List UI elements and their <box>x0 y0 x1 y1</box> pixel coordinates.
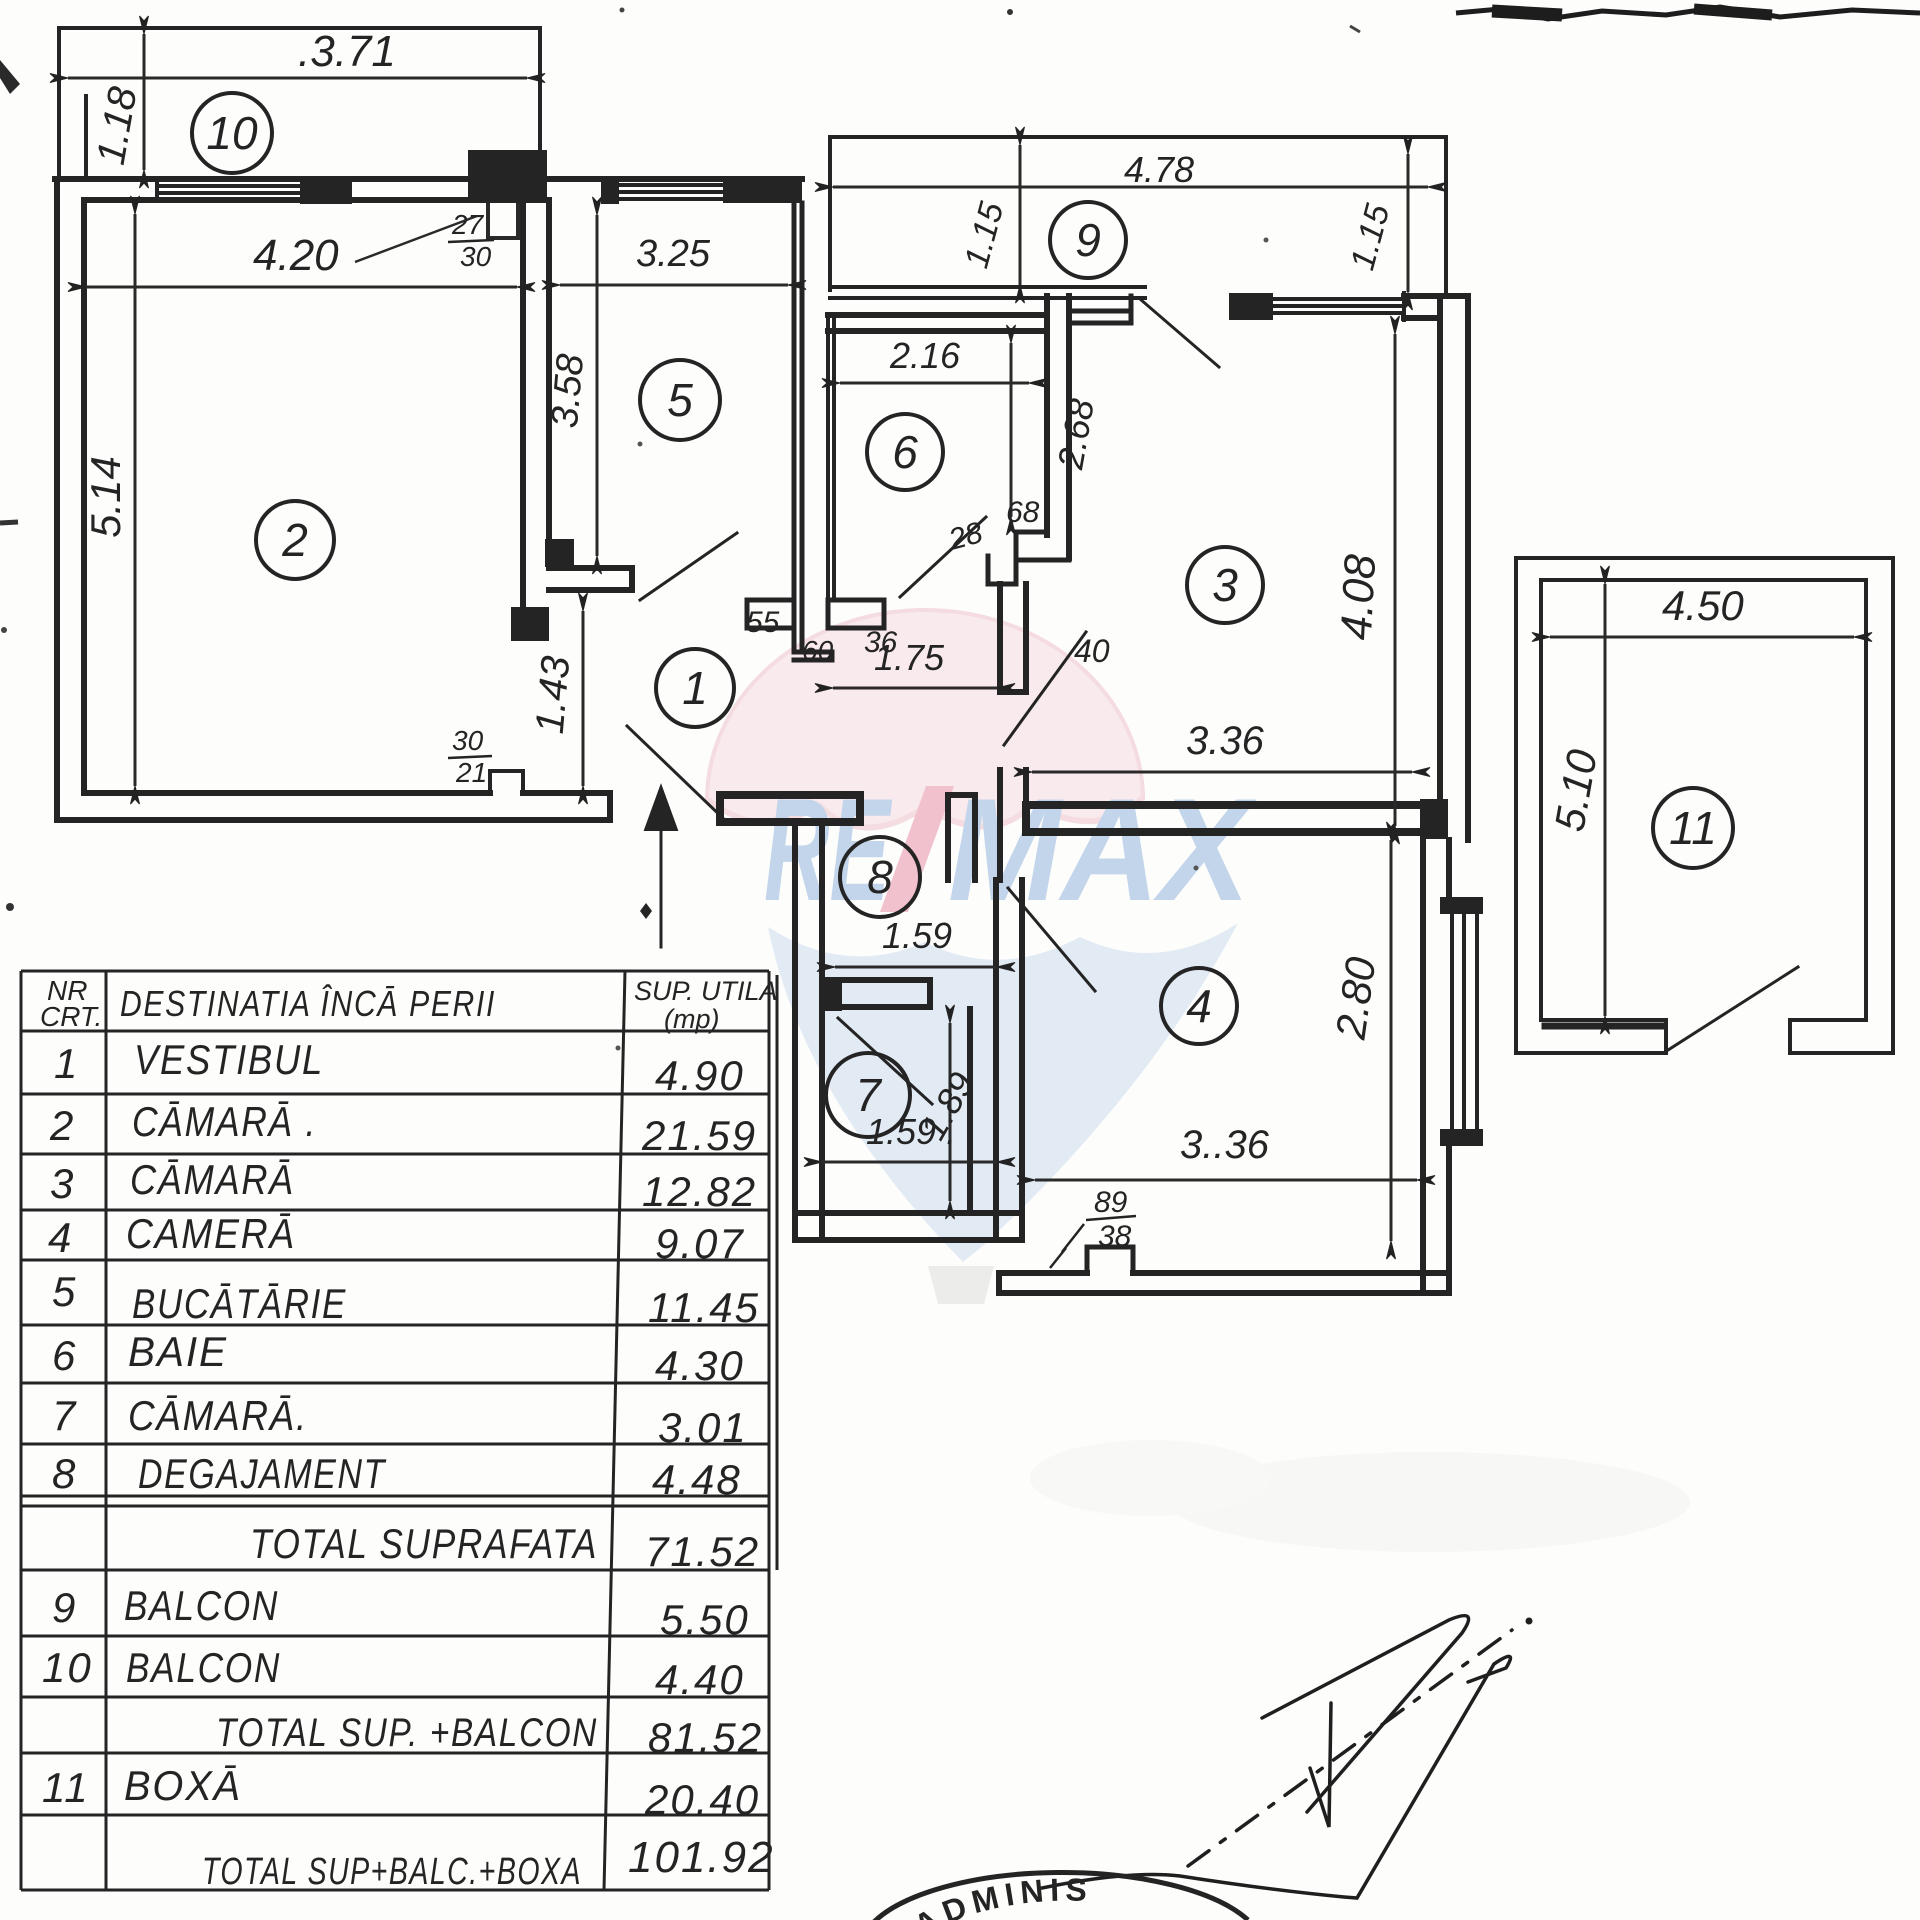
svg-text:10: 10 <box>42 1644 93 1691</box>
svg-text:8: 8 <box>867 851 893 903</box>
svg-text:101.92: 101.92 <box>628 1833 775 1882</box>
svg-text:4.78: 4.78 <box>1124 149 1194 190</box>
svg-text:4: 4 <box>1186 980 1212 1032</box>
svg-text:.3.71: .3.71 <box>298 27 396 76</box>
svg-text:7: 7 <box>855 1069 882 1121</box>
svg-text:5.50: 5.50 <box>660 1596 750 1643</box>
svg-text:7: 7 <box>52 1392 77 1439</box>
svg-text:5.14: 5.14 <box>82 456 129 538</box>
svg-text:CRT.: CRT. <box>40 1001 102 1032</box>
svg-text:3..36: 3..36 <box>1180 1123 1270 1167</box>
svg-text:9.07: 9.07 <box>655 1220 745 1267</box>
svg-text:30: 30 <box>452 725 484 756</box>
svg-text:4.20: 4.20 <box>253 231 339 280</box>
svg-text:40: 40 <box>1074 633 1110 669</box>
svg-text:11: 11 <box>42 1764 90 1811</box>
svg-text:4.48: 4.48 <box>652 1456 742 1503</box>
svg-text:3: 3 <box>50 1160 75 1207</box>
svg-text:SUP. UTILA: SUP. UTILA <box>634 976 778 1006</box>
svg-text:4.40: 4.40 <box>655 1656 745 1703</box>
svg-text:30: 30 <box>460 241 492 272</box>
svg-text:5: 5 <box>52 1268 77 1315</box>
svg-text:TOTAL SUP+BALC.+BOXA: TOTAL SUP+BALC.+BOXA <box>202 1851 582 1893</box>
svg-text:1: 1 <box>54 1040 79 1087</box>
svg-text:4: 4 <box>48 1214 73 1261</box>
svg-text:1.59: 1.59 <box>882 915 952 956</box>
svg-text:3.25: 3.25 <box>636 233 711 275</box>
svg-text:3.58: 3.58 <box>544 352 592 429</box>
svg-text:BALCON: BALCON <box>126 1644 281 1691</box>
svg-text:12.82: 12.82 <box>642 1168 757 1215</box>
svg-text:36: 36 <box>864 626 898 659</box>
svg-text:89: 89 <box>1094 1186 1128 1219</box>
svg-text:27: 27 <box>451 209 485 240</box>
svg-text:8: 8 <box>52 1450 77 1497</box>
svg-text:71.52: 71.52 <box>645 1528 760 1575</box>
svg-text:21: 21 <box>455 757 487 788</box>
svg-text:DEGAJAMENT: DEGAJAMENT <box>138 1450 387 1497</box>
svg-text:DESTINATIA ÎNCĀ PERII: DESTINATIA ÎNCĀ PERII <box>120 983 496 1024</box>
svg-text:20.40: 20.40 <box>644 1776 760 1823</box>
svg-text:BOXĀ: BOXĀ <box>124 1762 242 1809</box>
svg-text:11: 11 <box>1669 802 1717 854</box>
svg-text:CAMERĀ: CAMERĀ <box>126 1210 296 1257</box>
svg-text:6: 6 <box>892 426 918 478</box>
svg-text:9: 9 <box>52 1584 77 1631</box>
svg-text:BUCĀTĀRIE: BUCĀTĀRIE <box>132 1280 347 1327</box>
svg-text:81.52: 81.52 <box>648 1714 763 1761</box>
svg-text:4.90: 4.90 <box>655 1052 745 1099</box>
svg-text:68: 68 <box>1006 496 1040 529</box>
svg-text:4.30: 4.30 <box>655 1342 745 1389</box>
svg-text:2: 2 <box>49 1102 75 1149</box>
svg-text:55: 55 <box>746 606 780 639</box>
svg-text:11.45: 11.45 <box>648 1284 760 1331</box>
svg-text:21.59: 21.59 <box>641 1112 757 1159</box>
svg-text:38: 38 <box>1098 1220 1132 1253</box>
svg-text:CĀMARĀ: CĀMARĀ <box>130 1156 295 1203</box>
svg-text:6: 6 <box>52 1332 77 1379</box>
svg-text:9: 9 <box>1075 214 1101 266</box>
svg-text:4.50: 4.50 <box>1662 582 1744 629</box>
svg-text:BALCON: BALCON <box>124 1582 279 1629</box>
svg-text:3.01: 3.01 <box>658 1404 748 1451</box>
svg-text:4.08: 4.08 <box>1332 553 1385 642</box>
svg-text:60: 60 <box>802 635 834 666</box>
svg-text:2.16: 2.16 <box>889 335 961 376</box>
svg-text:2: 2 <box>281 514 308 566</box>
svg-text:TOTAL SUPRAFATA: TOTAL SUPRAFATA <box>250 1520 598 1567</box>
svg-text:5: 5 <box>667 374 693 426</box>
svg-text:CĀMARĀ.: CĀMARĀ. <box>128 1392 308 1439</box>
svg-text:CĀMARĀ .: CĀMARĀ . <box>132 1098 317 1145</box>
svg-text:1.43: 1.43 <box>528 654 579 735</box>
svg-text:3: 3 <box>1212 559 1238 611</box>
svg-text:1: 1 <box>682 662 708 714</box>
svg-text:(mp): (mp) <box>664 1004 720 1034</box>
svg-text:3.36: 3.36 <box>1186 719 1265 763</box>
svg-text:10: 10 <box>206 107 258 159</box>
svg-text:TOTAL SUP. +BALCON: TOTAL SUP. +BALCON <box>216 1711 598 1755</box>
svg-text:VESTIBUL: VESTIBUL <box>134 1036 324 1083</box>
svg-text:BAIE: BAIE <box>128 1328 228 1375</box>
